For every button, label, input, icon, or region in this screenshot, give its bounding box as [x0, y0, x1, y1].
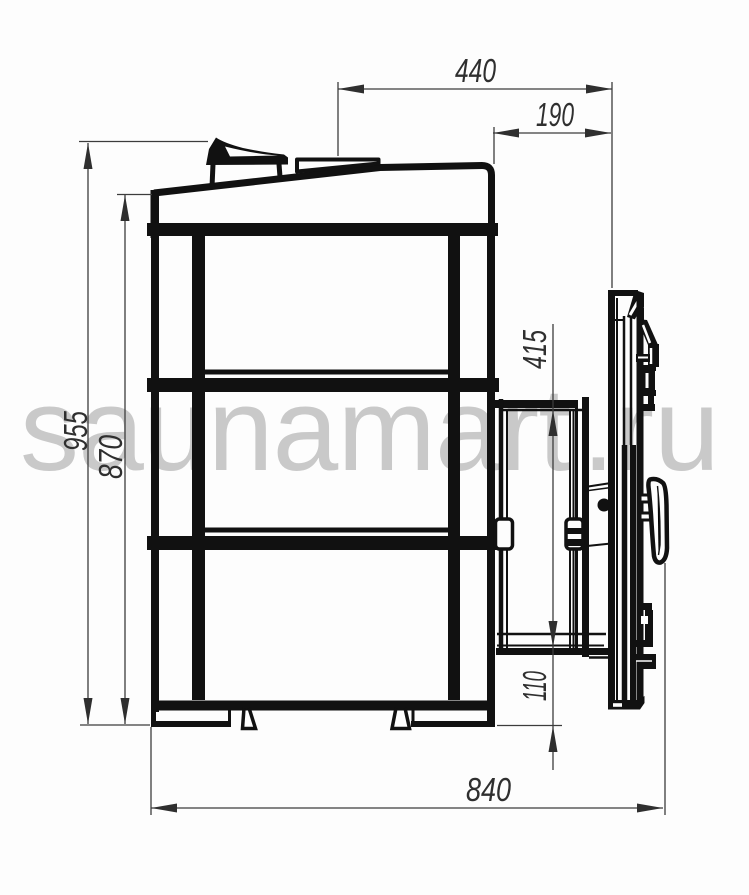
svg-text:415: 415	[516, 330, 553, 369]
svg-text:840: 840	[466, 771, 512, 808]
svg-text:190: 190	[536, 96, 574, 133]
svg-text:110: 110	[516, 671, 553, 701]
svg-text:440: 440	[455, 52, 496, 89]
svg-text:955: 955	[57, 411, 94, 451]
svg-text:870: 870	[92, 434, 129, 479]
